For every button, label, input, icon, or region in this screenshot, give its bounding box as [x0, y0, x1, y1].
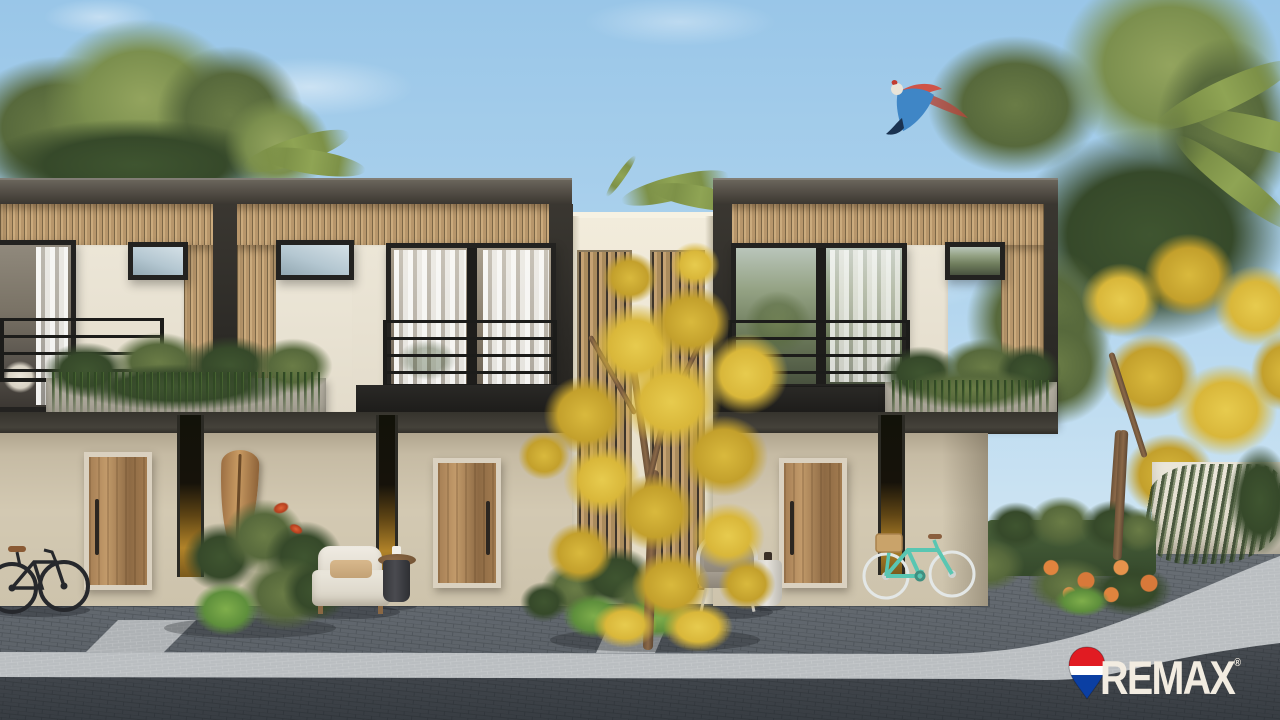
yellow-flower-blob [516, 430, 572, 482]
chair-leg [318, 606, 323, 614]
entry-door-left [84, 452, 152, 590]
roof-band-right [713, 178, 1058, 204]
black-bicycle [0, 526, 90, 620]
glass [950, 247, 1000, 275]
macaw-shapes [886, 80, 968, 135]
yellow-flower-blob [716, 556, 778, 612]
yellow-flower-blob [590, 600, 660, 650]
yellow-flower-blob [610, 470, 700, 554]
teal-bicycle-shapes [864, 534, 974, 598]
parapet-edge [572, 212, 713, 218]
soffit-left [0, 412, 572, 434]
entry-door-center [433, 458, 501, 588]
glass [281, 245, 349, 275]
yellow-flower-blob [660, 600, 736, 654]
macaw-bird [868, 74, 972, 144]
fern-blob [190, 580, 262, 638]
townhouse-render-scene: REMAX® [0, 0, 1280, 720]
foliage-blob [1052, 584, 1112, 618]
teal-bicycle [856, 518, 984, 606]
flower-bed [1024, 544, 1176, 616]
side-table-dark [378, 546, 416, 604]
yellow-tree-center [500, 230, 800, 650]
table-body [383, 560, 410, 602]
small-window [945, 242, 1005, 280]
hanging-plants-left [36, 322, 336, 422]
small-window [276, 240, 354, 280]
small-window [128, 242, 188, 280]
cloud [560, 0, 800, 52]
yellow-flower-blob [544, 520, 616, 586]
glass [133, 247, 183, 275]
registered-mark: ® [1234, 657, 1241, 669]
yellow-flower-blob [600, 250, 660, 306]
door-handle [95, 499, 99, 555]
door-handle [486, 501, 490, 555]
remax-watermark: REMAX® [1066, 642, 1280, 708]
slat-band-left [0, 204, 572, 245]
black-bicycle-shapes [0, 546, 88, 612]
roof-band-left [0, 178, 572, 204]
remax-brand-text: REMAX® [1100, 654, 1241, 701]
chair-leg [378, 606, 383, 614]
lumbar-pillow [330, 560, 372, 578]
brand-label: REMAX [1100, 651, 1234, 704]
